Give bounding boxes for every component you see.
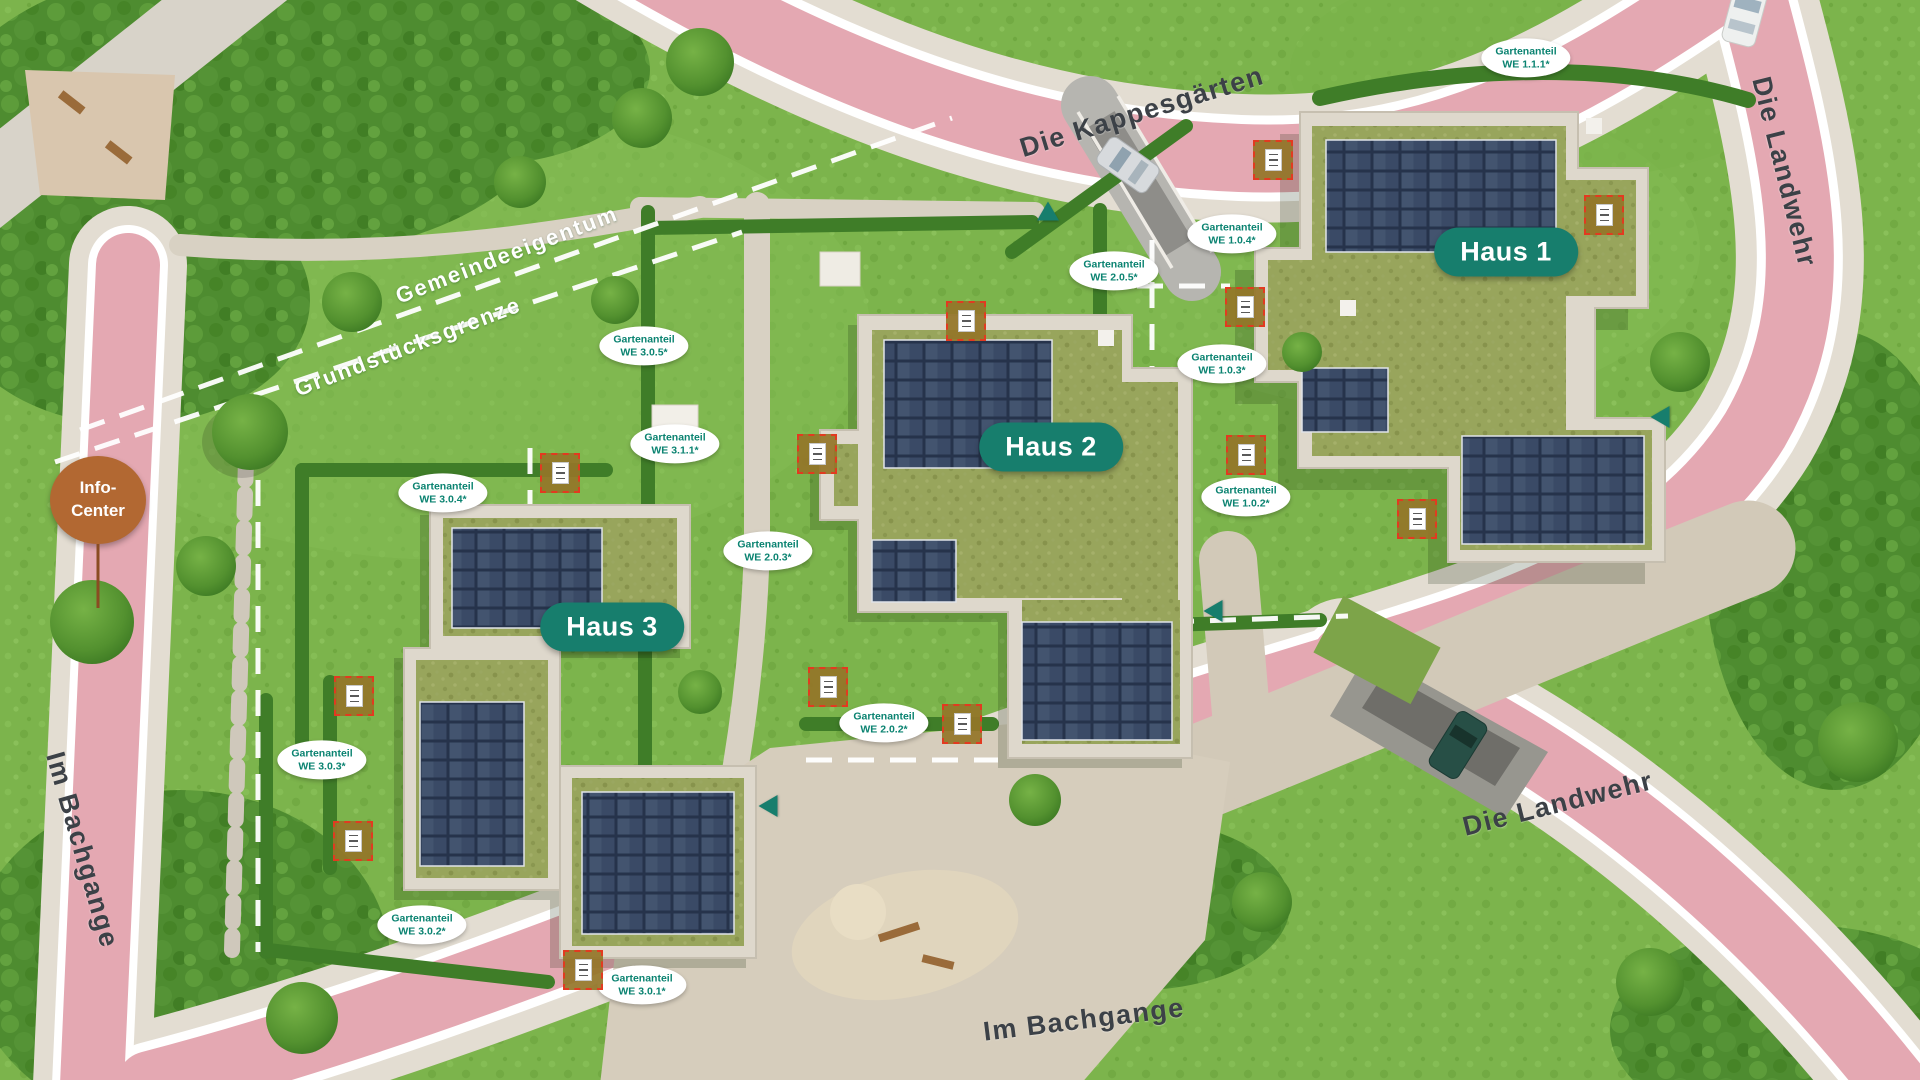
- badge-title: Gartenanteil: [737, 538, 798, 551]
- badge-title: Gartenanteil: [613, 333, 674, 346]
- badge-unit: WE 3.0.2*: [391, 925, 452, 938]
- roof-access-marker: [1225, 287, 1265, 327]
- info-center-pin[interactable]: Info- Center: [50, 456, 146, 544]
- site-plan-stage: Info- Center GartenanteilWE 1.1.1*Garten…: [0, 0, 1920, 1080]
- badge-unit: WE 2.0.2*: [853, 723, 914, 736]
- garden-share-badge: GartenanteilWE 2.0.2*: [839, 703, 928, 742]
- badge-unit: WE 3.0.5*: [613, 346, 674, 359]
- badge-unit: WE 2.0.5*: [1083, 271, 1144, 284]
- garden-share-badge: GartenanteilWE 3.0.1*: [597, 965, 686, 1004]
- badge-title: Gartenanteil: [412, 480, 473, 493]
- garden-share-badge: GartenanteilWE 2.0.3*: [723, 531, 812, 570]
- roof-access-marker: [563, 950, 603, 990]
- garden-share-badge: GartenanteilWE 1.1.1*: [1481, 38, 1570, 77]
- badge-title: Gartenanteil: [391, 912, 452, 925]
- ladder-icon: [954, 713, 971, 735]
- badge-unit: WE 3.0.4*: [412, 493, 473, 506]
- entrance-arrow-icon: [1204, 600, 1223, 622]
- house-label-haus-3[interactable]: Haus 3: [540, 603, 684, 652]
- info-center-line1: Info-: [80, 477, 117, 500]
- street-label: Die Landwehr: [1745, 74, 1822, 271]
- roof-access-marker: [946, 301, 986, 341]
- garden-share-badge: GartenanteilWE 1.0.4*: [1187, 214, 1276, 253]
- boundary-label: Grundstücksgrenze: [291, 292, 525, 402]
- badge-title: Gartenanteil: [853, 710, 914, 723]
- badge-unit: WE 1.0.4*: [1201, 234, 1262, 247]
- roof-access-marker: [1253, 140, 1293, 180]
- roof-access-marker: [540, 453, 580, 493]
- ladder-icon: [1238, 444, 1255, 466]
- garden-share-badge: GartenanteilWE 1.0.3*: [1177, 344, 1266, 383]
- entrance-arrow-icon: [759, 795, 778, 817]
- street-label: Im Bachgange: [39, 748, 125, 951]
- garden-share-badge: GartenanteilWE 1.0.2*: [1201, 477, 1290, 516]
- badge-title: Gartenanteil: [644, 431, 705, 444]
- house-label-haus-2[interactable]: Haus 2: [979, 423, 1123, 472]
- ladder-icon: [575, 959, 592, 981]
- roof-access-marker: [808, 667, 848, 707]
- ladder-icon: [345, 830, 362, 852]
- badge-title: Gartenanteil: [291, 747, 352, 760]
- roof-access-marker: [1226, 435, 1266, 475]
- badge-unit: WE 3.0.1*: [611, 985, 672, 998]
- ladder-icon: [346, 685, 363, 707]
- ladder-icon: [958, 310, 975, 332]
- entrance-arrow-icon: [1037, 202, 1059, 221]
- badge-unit: WE 1.1.1*: [1495, 58, 1556, 71]
- badge-unit: WE 3.1.1*: [644, 444, 705, 457]
- badge-title: Gartenanteil: [1083, 258, 1144, 271]
- entrance-arrow-icon: [1651, 406, 1670, 428]
- street-label: Die Kappesgärten: [1016, 60, 1268, 164]
- garden-share-badge: GartenanteilWE 3.1.1*: [630, 424, 719, 463]
- badge-title: Gartenanteil: [1191, 351, 1252, 364]
- ladder-icon: [809, 443, 826, 465]
- garden-share-badge: GartenanteilWE 3.0.4*: [398, 473, 487, 512]
- ladder-icon: [1596, 204, 1613, 226]
- garden-share-badge: GartenanteilWE 3.0.5*: [599, 326, 688, 365]
- garden-share-badge: GartenanteilWE 3.0.3*: [277, 740, 366, 779]
- badge-unit: WE 3.0.3*: [291, 760, 352, 773]
- roof-access-marker: [333, 821, 373, 861]
- street-label: Im Bachgange: [982, 992, 1187, 1047]
- roof-access-marker: [1584, 195, 1624, 235]
- roof-access-marker: [942, 704, 982, 744]
- badge-title: Gartenanteil: [1495, 45, 1556, 58]
- boundary-label: Gemeindeeigentum: [392, 201, 622, 310]
- roof-access-marker: [1397, 499, 1437, 539]
- badge-title: Gartenanteil: [1201, 221, 1262, 234]
- badge-unit: WE 1.0.2*: [1215, 497, 1276, 510]
- garden-share-badge: GartenanteilWE 2.0.5*: [1069, 251, 1158, 290]
- labels-overlay: Info- Center GartenanteilWE 1.1.1*Garten…: [0, 0, 1920, 1080]
- garden-share-badge: GartenanteilWE 3.0.2*: [377, 905, 466, 944]
- street-label: Die Landwehr: [1460, 765, 1657, 842]
- info-center-line2: Center: [71, 500, 125, 523]
- ladder-icon: [552, 462, 569, 484]
- roof-access-marker: [334, 676, 374, 716]
- badge-title: Gartenanteil: [611, 972, 672, 985]
- ladder-icon: [1265, 149, 1282, 171]
- badge-title: Gartenanteil: [1215, 484, 1276, 497]
- ladder-icon: [820, 676, 837, 698]
- roof-access-marker: [797, 434, 837, 474]
- badge-unit: WE 1.0.3*: [1191, 364, 1252, 377]
- badge-unit: WE 2.0.3*: [737, 551, 798, 564]
- ladder-icon: [1237, 296, 1254, 318]
- house-label-haus-1[interactable]: Haus 1: [1434, 228, 1578, 277]
- ladder-icon: [1409, 508, 1426, 530]
